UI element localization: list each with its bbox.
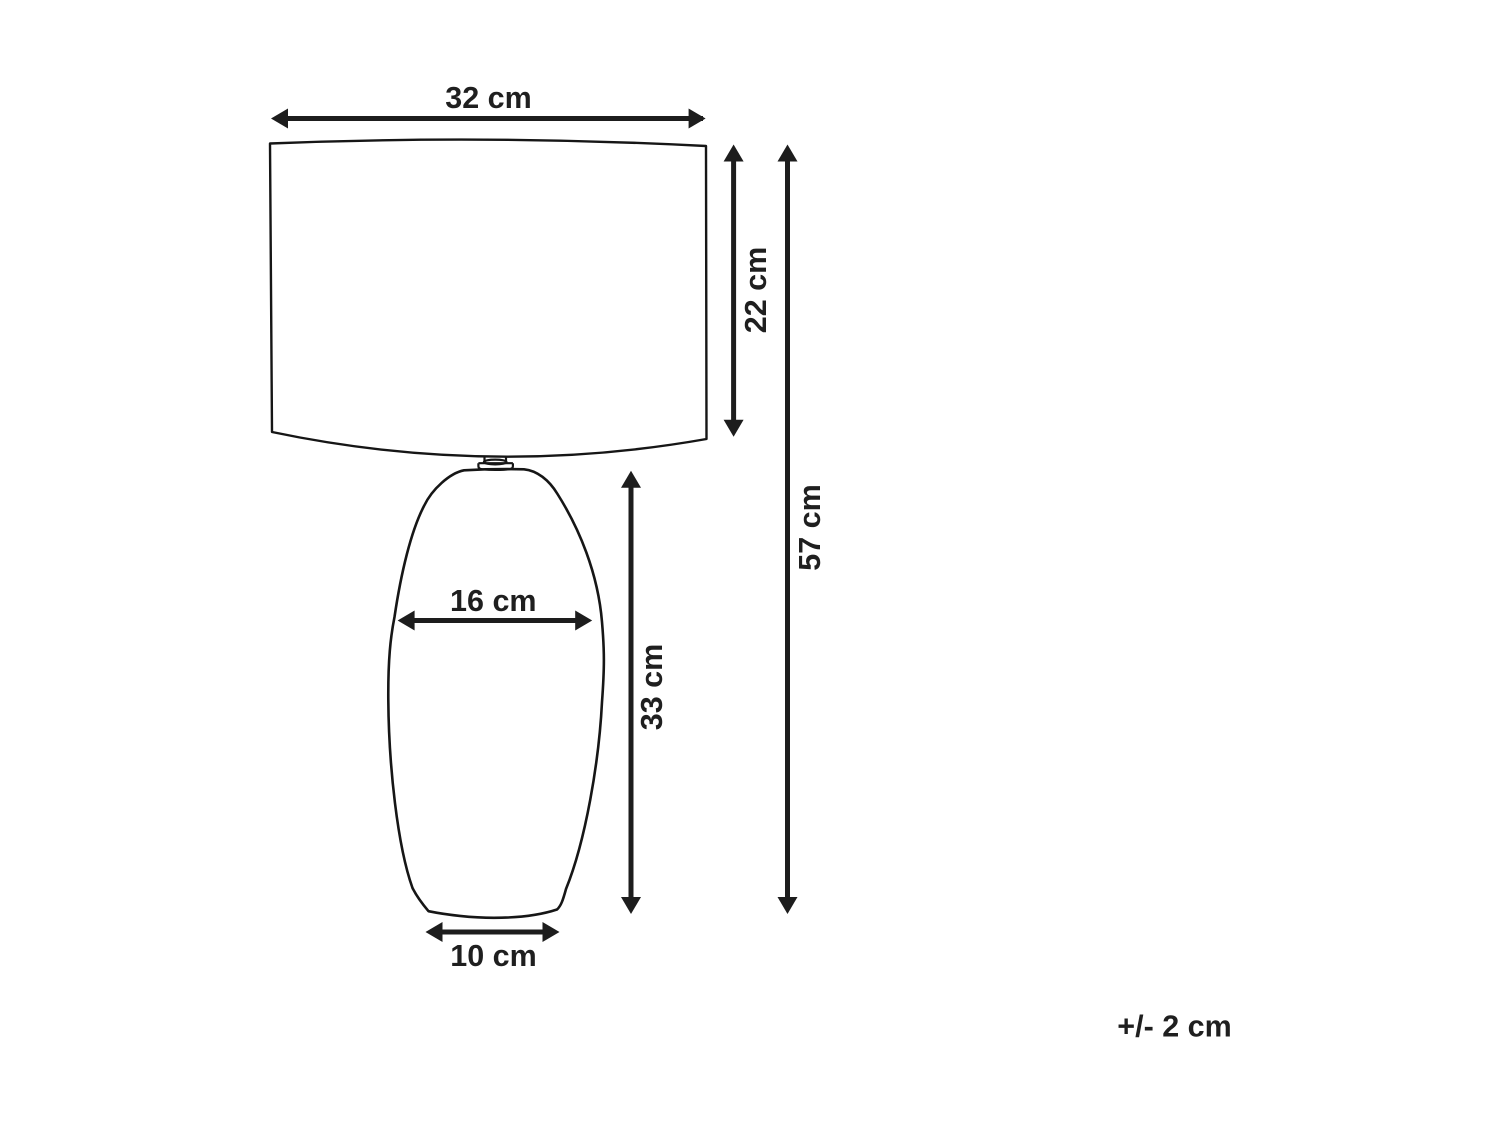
svg-text:+/- 2 cm: +/- 2 cm <box>1117 1010 1231 1044</box>
svg-text:32 cm: 32 cm <box>445 81 531 115</box>
svg-text:33 cm: 33 cm <box>635 644 669 730</box>
svg-text:22 cm: 22 cm <box>739 247 773 333</box>
svg-text:10 cm: 10 cm <box>450 939 536 973</box>
svg-text:16 cm: 16 cm <box>450 584 536 618</box>
svg-text:57 cm: 57 cm <box>793 484 827 570</box>
